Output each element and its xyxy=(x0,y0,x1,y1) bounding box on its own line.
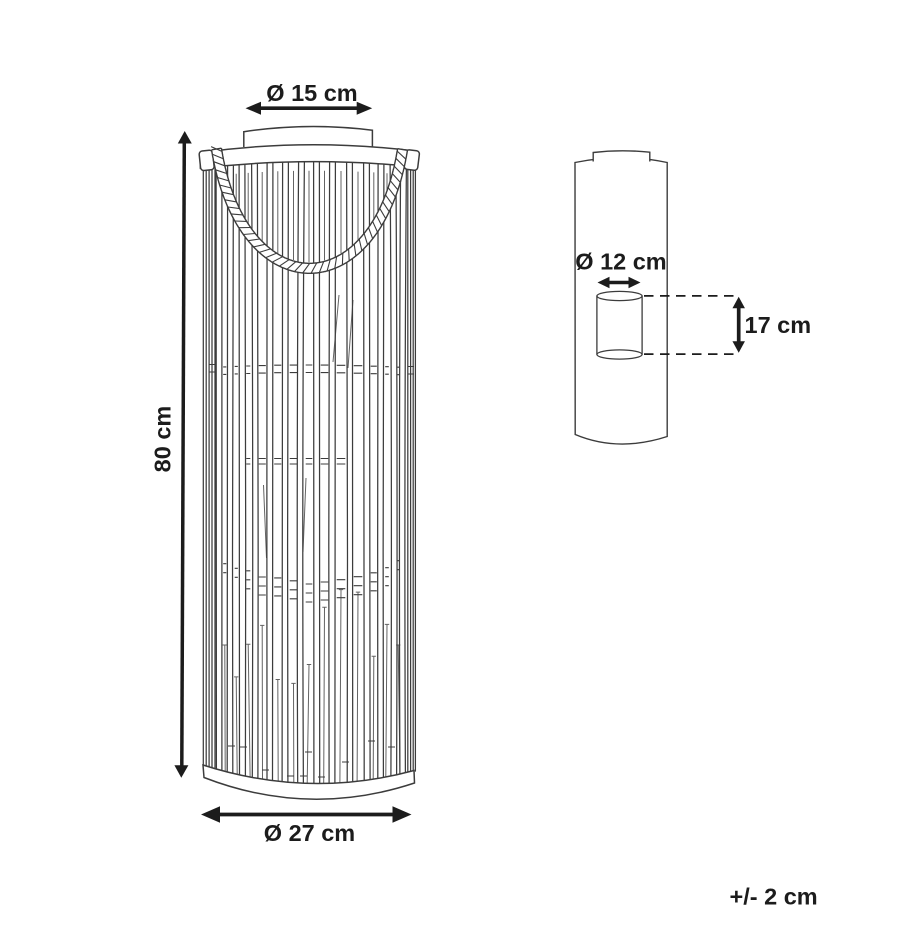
svg-text:Ø 27 cm: Ø 27 cm xyxy=(264,820,355,846)
svg-text:Ø 15 cm: Ø 15 cm xyxy=(266,80,357,106)
svg-text:Ø 12 cm: Ø 12 cm xyxy=(575,249,666,275)
svg-text:80 cm: 80 cm xyxy=(149,406,175,473)
svg-text:+/- 2 cm: +/- 2 cm xyxy=(730,884,818,910)
svg-text:17 cm: 17 cm xyxy=(745,312,812,338)
